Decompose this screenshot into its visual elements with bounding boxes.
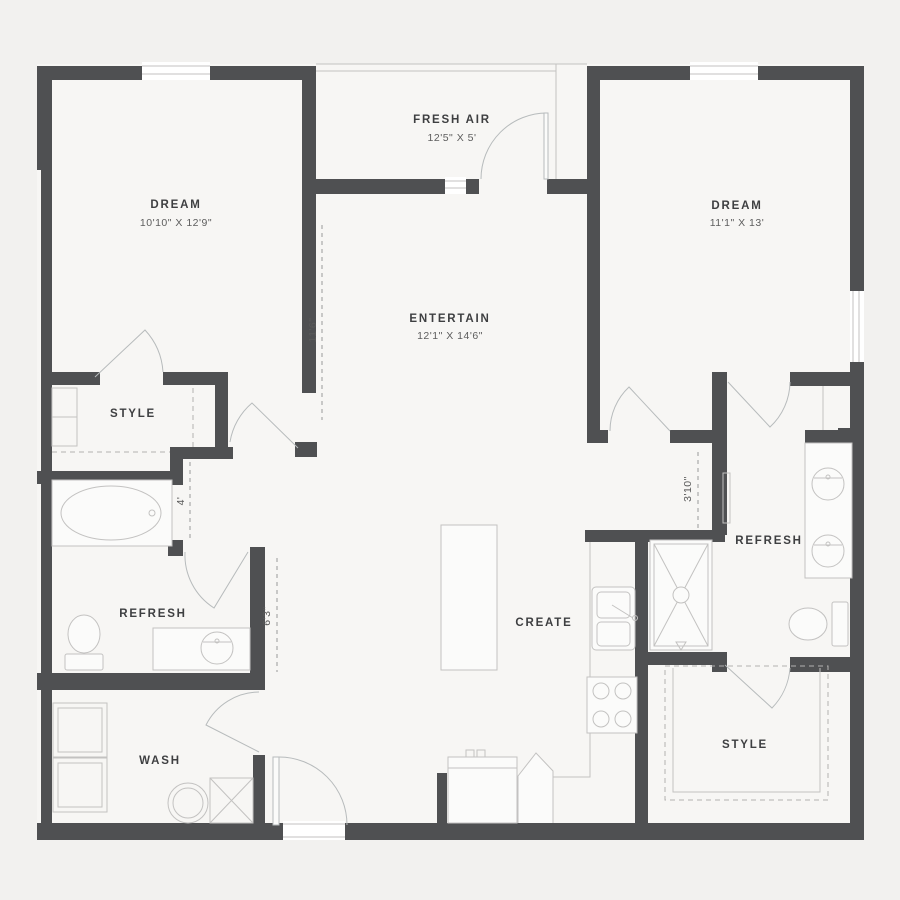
dim-label-entertain-hall: 11'6": [307, 318, 319, 343]
room-label-fresh-air: FRESH AIR: [413, 114, 491, 126]
entry-bench: [448, 750, 517, 823]
window-right-wall: [850, 291, 864, 362]
room-dims-fresh-air: 12'5" X 5': [428, 132, 477, 144]
room-label-refresh-right: REFRESH: [735, 535, 803, 547]
window-balcony: [445, 177, 466, 194]
toilet-left: [65, 615, 103, 670]
room-label-style-left: STYLE: [110, 408, 156, 420]
kitchen-island: [441, 525, 497, 670]
floor-plan-canvas: DREAM 10'10" X 12'9" FRESH AIR 12'5" X 5…: [0, 0, 900, 900]
room-dims-entertain: 12'1" X 14'6": [417, 330, 483, 342]
floor-plan: DREAM 10'10" X 12'9" FRESH AIR 12'5" X 5…: [0, 0, 900, 900]
room-dims-dream-left: 10'10" X 12'9": [140, 217, 212, 229]
dim-label-bath-hall: 6'3": [261, 606, 273, 625]
vanity-left: [153, 628, 250, 670]
dim-label-left-hall: 4': [175, 497, 187, 506]
vanity-right: [805, 443, 852, 578]
room-label-refresh-left: REFRESH: [119, 608, 187, 620]
window-top-left: [142, 62, 210, 80]
room-label-dream-right: DREAM: [711, 200, 762, 212]
stove: [587, 677, 637, 733]
room-label-create: CREATE: [515, 617, 572, 629]
room-label-dream-left: DREAM: [150, 199, 201, 211]
dim-label-right-hall: 3'10": [682, 476, 694, 502]
room-dims-dream-right: 11'1" X 13': [710, 217, 765, 229]
window-top-right: [690, 62, 758, 80]
room-label-wash: WASH: [139, 755, 181, 767]
room-label-style-right: STYLE: [722, 739, 768, 751]
room-label-entertain: ENTERTAIN: [409, 313, 490, 325]
kitchen-sink: [592, 587, 638, 650]
bathtub: [52, 480, 172, 546]
shower: [650, 540, 712, 650]
